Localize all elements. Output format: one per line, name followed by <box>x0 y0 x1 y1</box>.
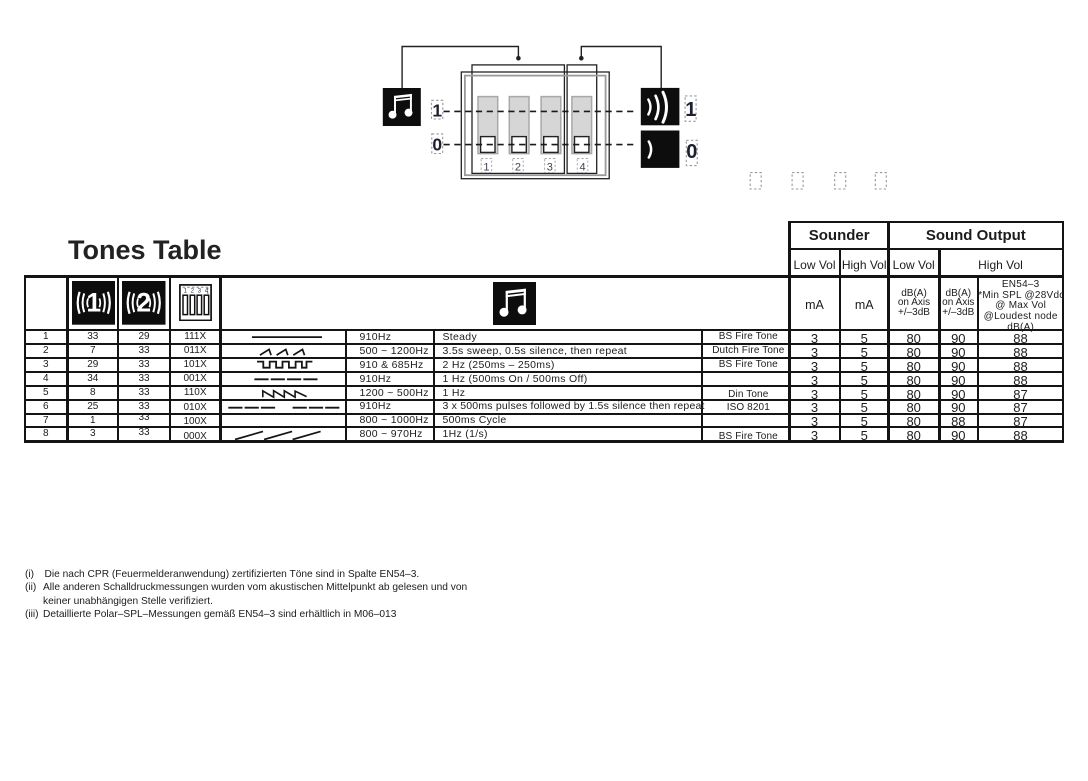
svg-text:2: 2 <box>515 161 521 173</box>
svg-text:1: 1 <box>184 288 188 295</box>
svg-text:2: 2 <box>191 288 195 295</box>
svg-text:1: 1 <box>432 100 442 120</box>
svg-text:1: 1 <box>685 99 696 121</box>
svg-text:2: 2 <box>136 287 151 317</box>
svg-text:3: 3 <box>198 288 202 295</box>
svg-text:4: 4 <box>579 161 585 173</box>
svg-text:0: 0 <box>432 135 442 155</box>
svg-text:0: 0 <box>686 141 697 163</box>
svg-text:1: 1 <box>483 161 489 173</box>
svg-text:4: 4 <box>205 288 209 295</box>
svg-text:1: 1 <box>86 287 101 317</box>
svg-text:3: 3 <box>547 161 553 173</box>
